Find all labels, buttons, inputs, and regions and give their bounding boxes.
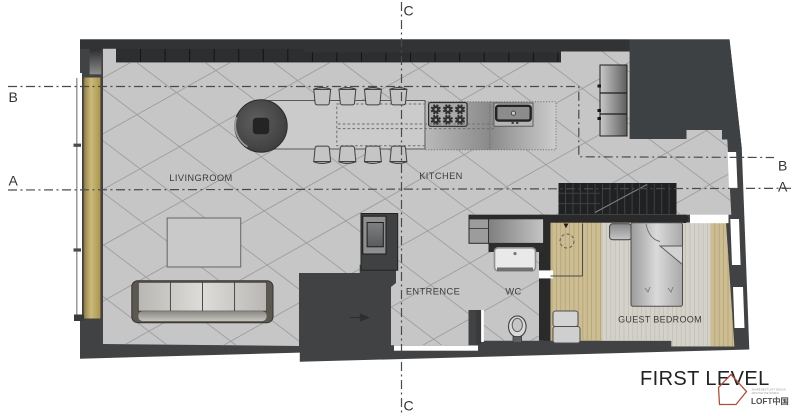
svg-text:A: A: [9, 173, 19, 189]
svg-text:C: C: [404, 3, 414, 19]
svg-text:B: B: [9, 89, 18, 105]
svg-text:FIRST LEVEL: FIRST LEVEL: [640, 368, 770, 390]
svg-text:GUEST BEDROOM: GUEST BEDROOM: [618, 315, 702, 325]
svg-text:B: B: [778, 158, 787, 174]
svg-text:C: C: [404, 398, 414, 414]
svg-text:SHARE BEST LOFT DESIGN: SHARE BEST LOFT DESIGN: [752, 388, 786, 392]
svg-text:AROUND THE WORLD: AROUND THE WORLD: [752, 391, 780, 395]
svg-text:A: A: [778, 179, 788, 195]
svg-text:LOFT中国: LOFT中国: [751, 396, 789, 406]
svg-text:ENTRENCE: ENTRENCE: [406, 287, 460, 297]
svg-text:WC: WC: [505, 287, 521, 297]
svg-text:KITCHEN: KITCHEN: [419, 171, 463, 181]
svg-text:LIVINGROOM: LIVINGROOM: [169, 173, 232, 183]
